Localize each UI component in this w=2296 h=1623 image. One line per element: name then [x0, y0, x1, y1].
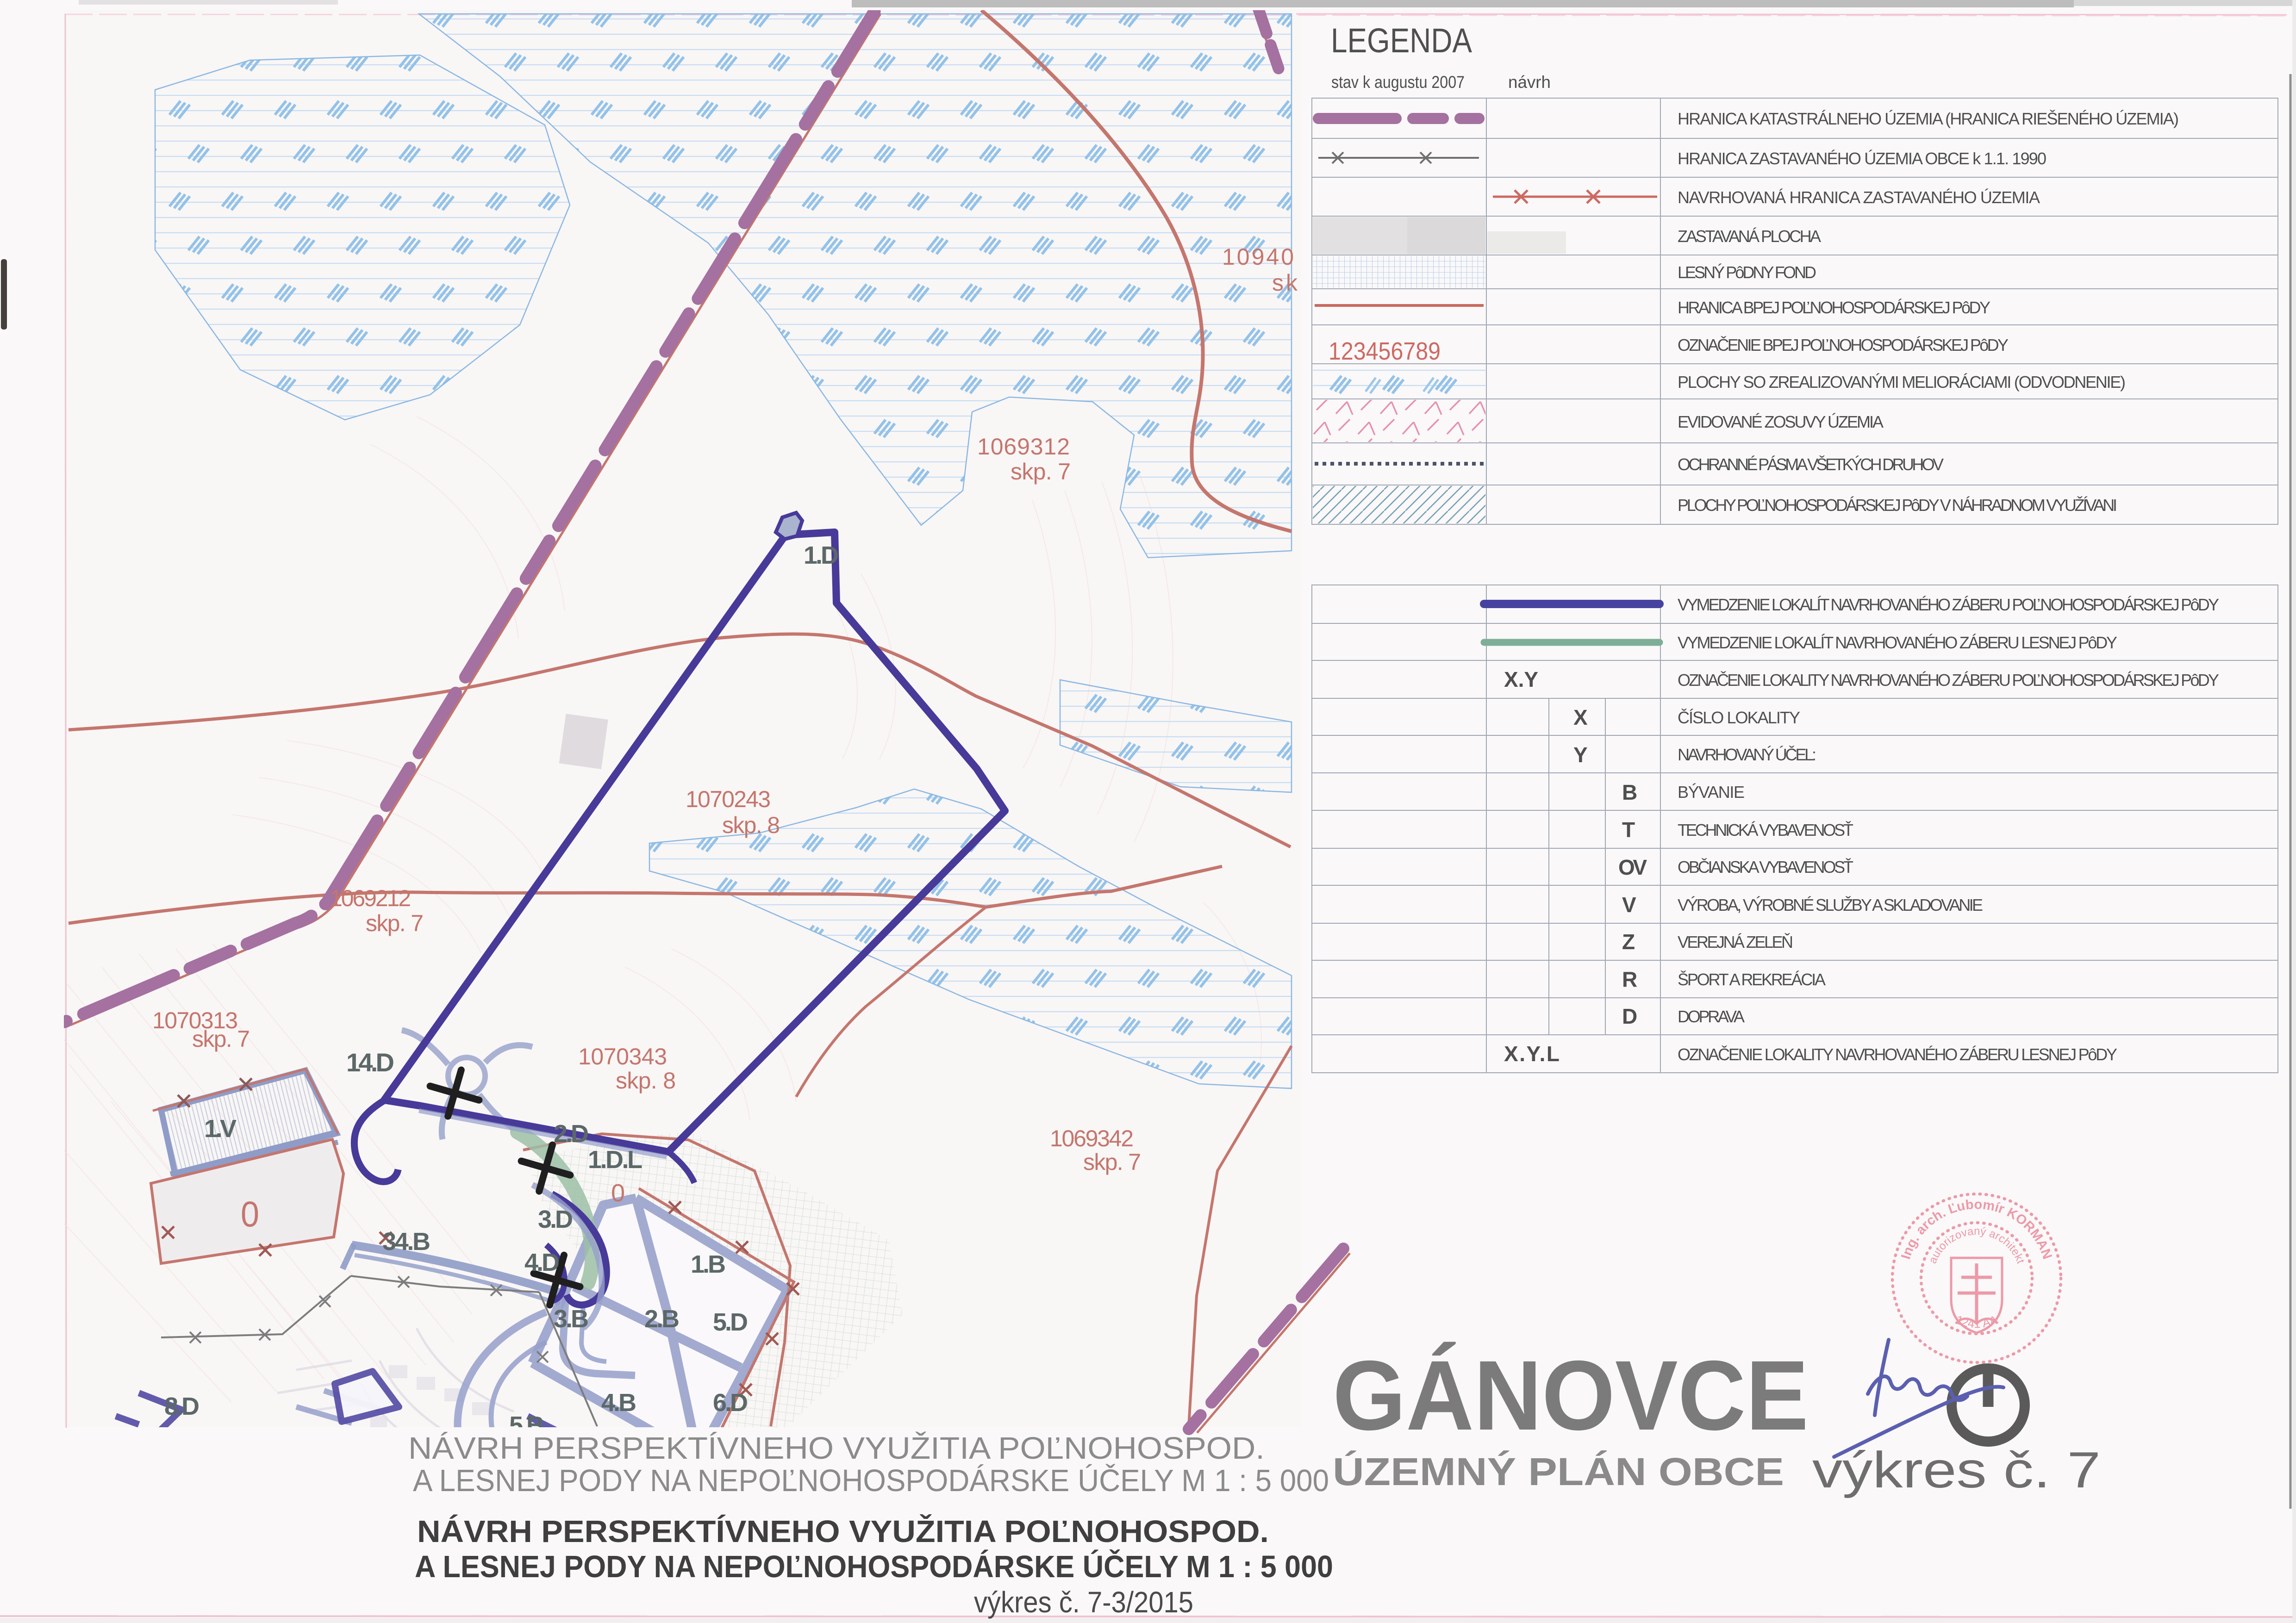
- svg-text:OCHRANNÉ PÁSMA VŠETKÝCH DRUHOV: OCHRANNÉ PÁSMA VŠETKÝCH DRUHOV: [1678, 455, 1944, 474]
- svg-text:skp. 8: skp. 8: [722, 812, 780, 838]
- svg-text:ZASTAVANÁ PLOCHA: ZASTAVANÁ PLOCHA: [1678, 227, 1821, 246]
- svg-text:skp. 7: skp. 7: [1083, 1149, 1141, 1175]
- svg-text:0: 0: [241, 1194, 259, 1234]
- svg-text:T: T: [1622, 818, 1635, 842]
- svg-text:výkres č. 7-3/2015: výkres č. 7-3/2015: [974, 1586, 1193, 1619]
- svg-text:OV: OV: [1618, 855, 1647, 879]
- svg-text:LESNÝ PôDNY FOND: LESNÝ PôDNY FOND: [1678, 263, 1816, 282]
- svg-text:0: 0: [611, 1179, 625, 1207]
- svg-text:ŠPORT A REKREÁCIA: ŠPORT A REKREÁCIA: [1678, 970, 1826, 989]
- svg-text:NÁVRH PERSPEKTÍVNEHO VYUŽITIA: NÁVRH PERSPEKTÍVNEHO VYUŽITIA POĽNOHOSPO…: [408, 1431, 1265, 1466]
- svg-text:D: D: [1622, 1004, 1637, 1028]
- svg-text:8.D: 8.D: [164, 1393, 200, 1420]
- svg-text:HRANICA BPEJ POĽNOHOSPODÁRSKEJ: HRANICA BPEJ POĽNOHOSPODÁRSKEJ PôDY: [1678, 298, 1990, 317]
- svg-text:NAVRHOVANÝ ÚČEL:: NAVRHOVANÝ ÚČEL:: [1678, 745, 1816, 764]
- svg-text:skp. 7: skp. 7: [1011, 459, 1071, 485]
- svg-text:1070243: 1070243: [686, 786, 771, 812]
- svg-text:NAVRHOVANÁ HRANICA ZASTAVANÉHO: NAVRHOVANÁ HRANICA ZASTAVANÉHO ÚZEMIA: [1678, 188, 2040, 207]
- svg-text:4.B: 4.B: [601, 1389, 636, 1417]
- svg-text:34.B: 34.B: [382, 1228, 430, 1256]
- svg-text:ČÍSLO LOKALITY: ČÍSLO LOKALITY: [1678, 708, 1800, 727]
- svg-text:A LESNEJ PODY NA NEPOĽNOHOSPOD: A LESNEJ PODY NA NEPOĽNOHOSPODÁRSKE ÚČEL…: [415, 1549, 1333, 1584]
- svg-text:14.D: 14.D: [346, 1048, 394, 1077]
- svg-text:skp. 7: skp. 7: [192, 1026, 250, 1052]
- svg-text:X: X: [1573, 705, 1588, 729]
- svg-text:LEGENDA: LEGENDA: [1331, 21, 1472, 60]
- svg-text:ÚZEMNÝ PLÁN OBCE: ÚZEMNÝ PLÁN OBCE: [1333, 1450, 1784, 1493]
- svg-text:3.D: 3.D: [538, 1206, 573, 1233]
- svg-text:B: B: [1622, 780, 1637, 804]
- svg-text:1.B: 1.B: [691, 1250, 726, 1278]
- svg-text:BÝVANIE: BÝVANIE: [1678, 783, 1745, 802]
- svg-text:X.Y: X.Y: [1504, 667, 1538, 691]
- svg-text:VYMEDZENIE LOKALÍT NAVRHOVANÉH: VYMEDZENIE LOKALÍT NAVRHOVANÉHO ZÁBERU P…: [1678, 595, 2219, 614]
- svg-text:V: V: [1622, 893, 1636, 917]
- svg-text:1069312: 1069312: [977, 434, 1070, 460]
- svg-text:DOPRAVA: DOPRAVA: [1678, 1007, 1745, 1026]
- svg-text:skp. 8: skp. 8: [616, 1068, 676, 1094]
- svg-text:stav k augustu 2007: stav k augustu 2007: [1331, 73, 1465, 92]
- svg-text:NÁVRH PERSPEKTÍVNEHO VYUŽITIA: NÁVRH PERSPEKTÍVNEHO VYUŽITIA POĽNOHOSPO…: [417, 1514, 1269, 1549]
- svg-text:1.V: 1.V: [204, 1115, 237, 1143]
- svg-text:5.D: 5.D: [713, 1308, 748, 1336]
- svg-text:X.Y.L: X.Y.L: [1504, 1042, 1560, 1066]
- svg-text:Y: Y: [1573, 743, 1588, 767]
- svg-text:R: R: [1622, 967, 1637, 991]
- svg-text:skp. 7: skp. 7: [366, 910, 424, 936]
- svg-text:PLOCHY POĽNOHOSPODÁRSKEJ PôDY: PLOCHY POĽNOHOSPODÁRSKEJ PôDY V NÁHRADNO…: [1678, 496, 2117, 515]
- svg-text:123456789: 123456789: [1329, 337, 1441, 365]
- svg-text:10940: 10940: [1222, 244, 1294, 270]
- svg-text:1069342: 1069342: [1050, 1126, 1134, 1151]
- svg-text:TECHNICKÁ VYBAVENOSŤ: TECHNICKÁ VYBAVENOSŤ: [1678, 821, 1853, 839]
- svg-text:3.B: 3.B: [554, 1305, 589, 1333]
- svg-text:OZNAČENIE BPEJ POĽNOHOSPODÁRS: OZNAČENIE BPEJ POĽNOHOSPODÁRSKEJ PôDY: [1678, 336, 2009, 354]
- svg-text:GÁNOVCE: GÁNOVCE: [1333, 1340, 1809, 1451]
- svg-text:Z: Z: [1622, 930, 1635, 954]
- svg-text:1069212: 1069212: [330, 885, 411, 911]
- svg-text:návrh: návrh: [1508, 73, 1551, 92]
- svg-text:2.D: 2.D: [554, 1120, 589, 1148]
- svg-text:A LESNEJ PODY NA NEPOĽNOHOSPO: A LESNEJ PODY NA NEPOĽNOHOSPODÁRSKE ÚČEL…: [413, 1463, 1329, 1498]
- svg-text:2.B: 2.B: [644, 1305, 680, 1333]
- svg-text:OZNAČENIE LOKALITY NAVRHOVANÉH: OZNAČENIE LOKALITY NAVRHOVANÉHO ZÁBERU P…: [1678, 671, 2219, 690]
- svg-text:OZNAČENIE LOKALITY NAVRHOVANÉH: OZNAČENIE LOKALITY NAVRHOVANÉHO ZÁBERU L…: [1678, 1045, 2117, 1064]
- svg-text:PLOCHY SO ZREALIZOVANÝMI MELIO: PLOCHY SO ZREALIZOVANÝMI MELIORÁCIAMI (O…: [1678, 373, 2126, 392]
- svg-text:VÝROBA, VÝROBNÉ SLUŽBY A SKLAD: VÝROBA, VÝROBNÉ SLUŽBY A SKLADOVANIE: [1678, 895, 1983, 914]
- svg-text:OBČIANSKA VYBAVENOSŤ: OBČIANSKA VYBAVENOSŤ: [1678, 858, 1853, 877]
- svg-text:výkres č. 7: výkres č. 7: [1812, 1442, 2101, 1499]
- svg-text:1070343: 1070343: [578, 1044, 667, 1070]
- svg-text:EVIDOVANÉ ZOSUVY ÚZEMIA: EVIDOVANÉ ZOSUVY ÚZEMIA: [1678, 412, 1884, 431]
- svg-text:4.D: 4.D: [524, 1249, 560, 1276]
- svg-text:HRANICA KATASTRÁLNEHO ÚZEMIA (: HRANICA KATASTRÁLNEHO ÚZEMIA (HRANICA RI…: [1678, 109, 2179, 128]
- svg-text:1.D: 1.D: [804, 541, 839, 569]
- svg-text:VYMEDZENIE LOKALÍT NAVRHOVANÉH: VYMEDZENIE LOKALÍT NAVRHOVANÉHO ZÁBERU L…: [1678, 633, 2117, 652]
- svg-text:VEREJNÁ ZELEŇ: VEREJNÁ ZELEŇ: [1678, 933, 1793, 951]
- svg-text:6.D: 6.D: [713, 1389, 748, 1417]
- svg-text:1.D.L: 1.D.L: [588, 1146, 643, 1174]
- svg-text:HRANICA ZASTAVANÉHO ÚZEMIA OBC: HRANICA ZASTAVANÉHO ÚZEMIA OBCE k 1.1. 1…: [1678, 149, 2046, 168]
